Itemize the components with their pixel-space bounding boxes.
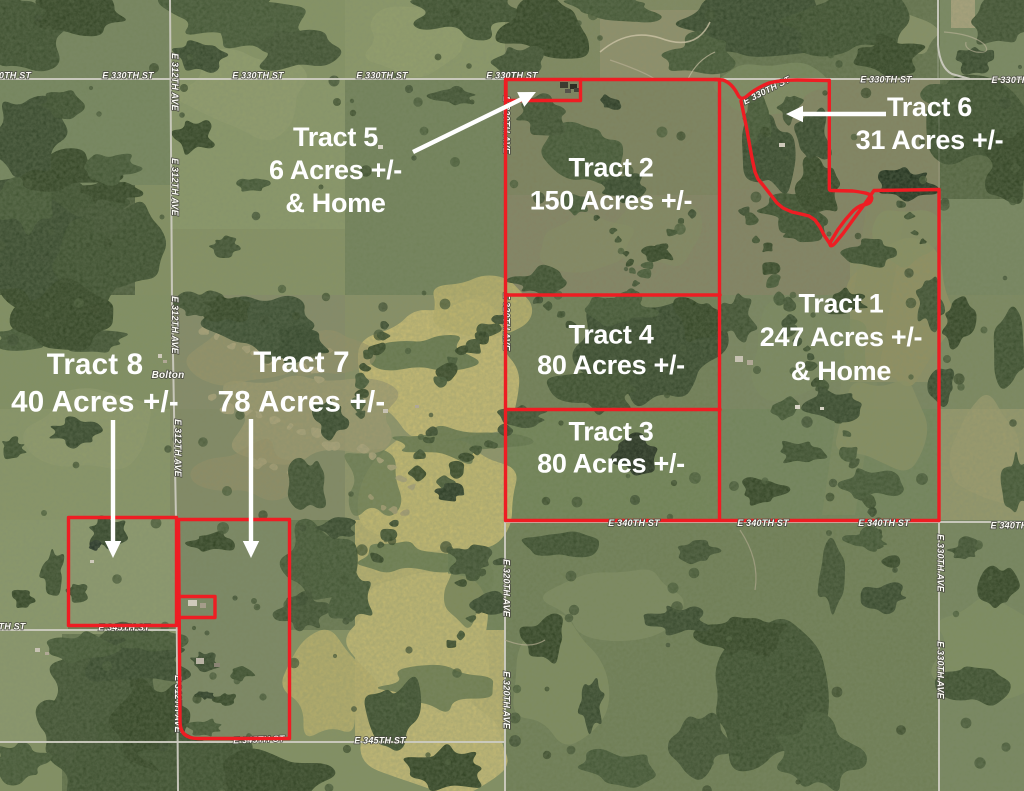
svg-text:E 312TH AVE: E 312TH AVE [170,296,180,355]
svg-text:6 Acres +/-: 6 Acres +/- [269,155,402,185]
svg-text:E 312TH AVE: E 312TH AVE [170,53,180,112]
svg-text:40 Acres +/-: 40 Acres +/- [11,386,179,419]
svg-text:E 330TH ST: E 330TH ST [860,75,913,85]
svg-text:Tract 3: Tract 3 [569,417,654,447]
svg-text:E 320TH AVE: E 320TH AVE [502,559,512,618]
svg-text:E 330TH ST: E 330TH ST [356,71,409,81]
svg-text:Tract 7: Tract 7 [253,346,350,379]
svg-text:E 330TH ST: E 330TH ST [102,71,155,81]
svg-text:E 330TH AVE: E 330TH AVE [936,534,946,593]
svg-text:& Home: & Home [791,356,891,386]
svg-text:Bolton: Bolton [152,370,185,381]
svg-text:Tract 1: Tract 1 [799,289,884,319]
svg-text:Tract 5: Tract 5 [293,122,378,152]
svg-text:150 Acres +/-: 150 Acres +/- [530,186,692,216]
svg-text:E 340TH ST: E 340TH ST [608,518,661,528]
svg-text:Tract 4: Tract 4 [569,320,654,350]
svg-text:80 Acres +/-: 80 Acres +/- [537,449,685,479]
svg-text:E 312TH AVE: E 312TH AVE [173,419,183,478]
svg-text:E 320TH AVE: E 320TH AVE [502,671,512,730]
svg-text:& Home: & Home [285,188,385,218]
svg-text:E 330TH: E 330TH [992,75,1024,85]
svg-text:E 340TH ST: E 340TH ST [858,518,911,528]
svg-text:E 330TH ST: E 330TH ST [232,71,285,81]
svg-text:E 312TH AVE: E 312TH AVE [170,158,180,217]
svg-text:E 345TH ST: E 345TH ST [354,736,407,746]
svg-text:Tract 6: Tract 6 [887,92,972,122]
svg-text:E 340TH: E 340TH [991,521,1024,531]
svg-text:E 330TH AVE: E 330TH AVE [936,641,946,700]
svg-text:247 Acres +/-: 247 Acres +/- [760,322,922,352]
svg-text:TH ST: TH ST [0,622,27,632]
svg-text:31 Acres +/-: 31 Acres +/- [856,125,1004,155]
svg-text:80 Acres +/-: 80 Acres +/- [537,350,685,380]
svg-text:E 340TH ST: E 340TH ST [737,518,790,528]
svg-text:Tract 2: Tract 2 [569,153,654,183]
svg-text:0TH ST: 0TH ST [0,71,32,81]
svg-text:Tract 8: Tract 8 [47,348,144,381]
svg-text:78 Acres +/-: 78 Acres +/- [218,386,386,419]
